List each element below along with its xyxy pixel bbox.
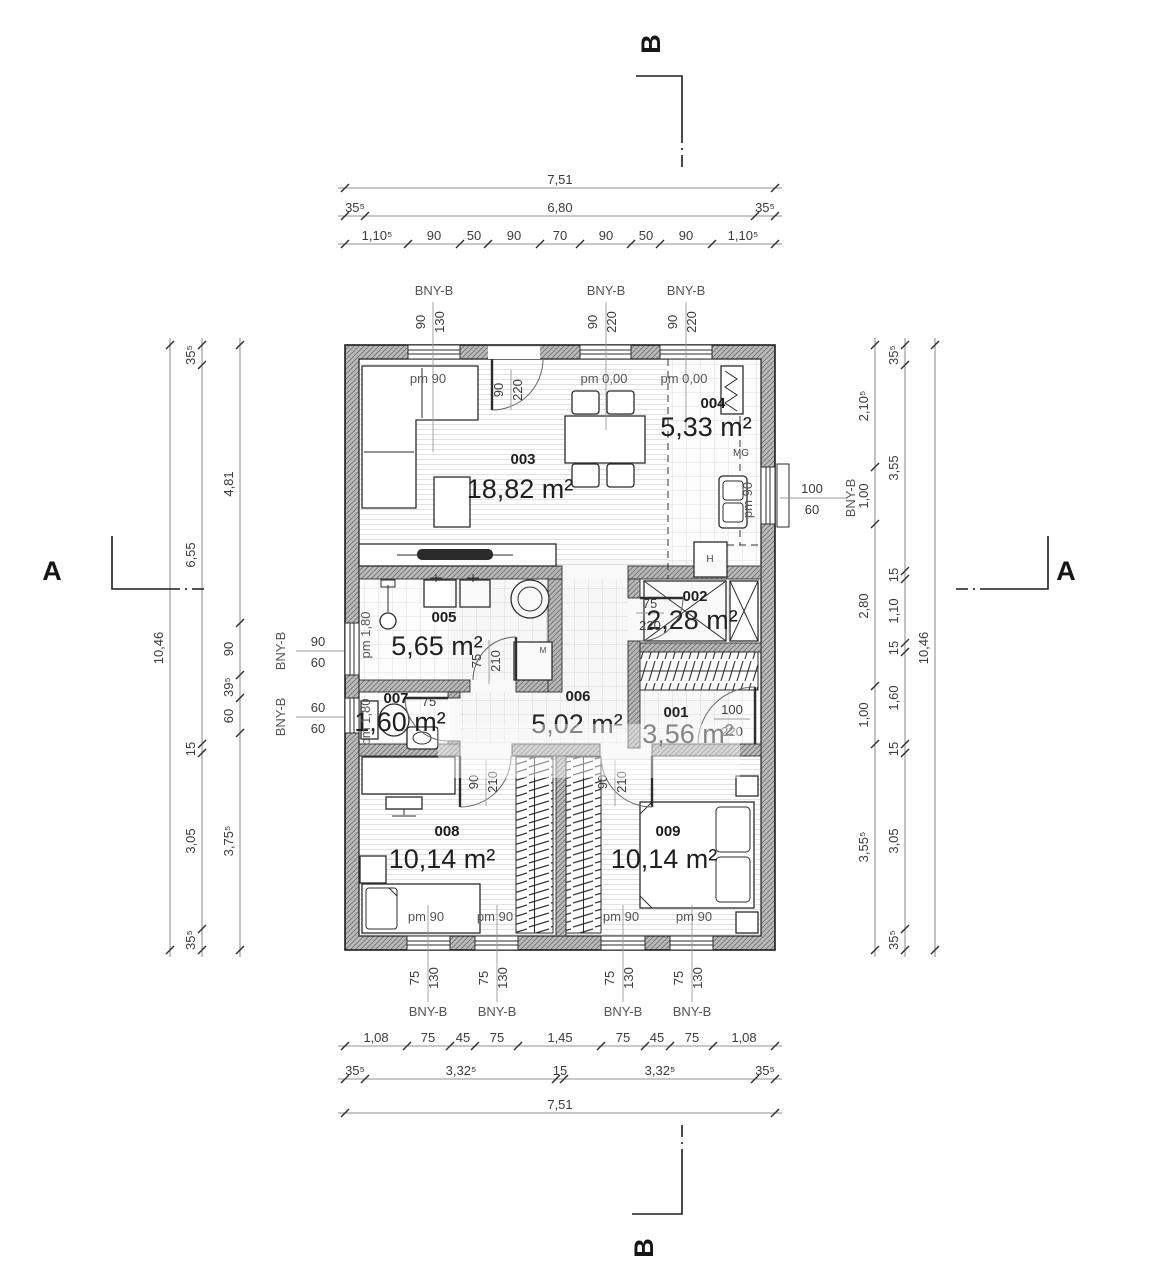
floor-plan-drawing: 003 18,82 m² 004 5,33 m² 005 5,65 m² 002…: [0, 0, 1171, 1287]
window-type-label: BNY-B: [273, 698, 288, 737]
window-type-label: BNY-B: [673, 1004, 712, 1019]
faucet: [380, 613, 396, 629]
pm-label: pm 1,80: [358, 612, 373, 659]
window-type-label: BNY-B: [587, 283, 626, 298]
window-size-label: 60: [805, 502, 819, 517]
window-size-label: 130: [432, 311, 447, 333]
window-size-label: 60: [311, 721, 325, 736]
door-size-label: 75: [422, 694, 436, 709]
dim-label: 75: [490, 1030, 504, 1045]
room-number: 003: [510, 451, 535, 468]
window-size-label: 220: [684, 311, 699, 333]
coffee-table: [434, 477, 470, 527]
dim-label: 35⁵: [345, 200, 365, 215]
dining-table: [565, 416, 645, 463]
nightstand: [736, 912, 758, 933]
dim-label: 90: [427, 228, 441, 243]
dim-label: 15: [183, 742, 198, 756]
fixture-label-mg: MG: [733, 448, 749, 459]
dim-label: 10,46: [916, 632, 931, 665]
window-size-label: 90: [413, 315, 428, 329]
dim-label: 2,10⁵: [856, 391, 871, 422]
door-size-label: 90: [491, 383, 506, 397]
dim-label: 50: [639, 228, 653, 243]
dim-label: 35⁵: [183, 345, 198, 365]
dim-label: 3,05: [886, 828, 901, 853]
dim-label: 35⁵: [183, 930, 198, 950]
window-type-label: BNY-B: [667, 283, 706, 298]
room-number: 009: [655, 823, 680, 840]
dim-label: 1,00: [856, 702, 871, 727]
section-letter-b: B: [629, 1238, 659, 1258]
dim-label: 1,00: [856, 483, 871, 508]
dim-label: 1,45: [547, 1030, 572, 1045]
room-number: 007: [383, 690, 408, 707]
chair: [607, 391, 634, 414]
dim-label: 3,55⁵: [856, 832, 871, 863]
dim-label: 90: [221, 642, 236, 656]
window-type-label: BNY-B: [415, 283, 454, 298]
dim-label: 1,60: [886, 685, 901, 710]
dim-label: 39⁵: [221, 677, 236, 697]
section-letter-b: B: [636, 34, 666, 54]
window-size-label: 75: [407, 971, 422, 985]
room-area: 10,14 m²: [611, 844, 718, 874]
dim-label: 3,55: [886, 455, 901, 480]
dim-label: 70: [553, 228, 567, 243]
dim-label: 90: [507, 228, 521, 243]
room-area: 18,82 m²: [467, 474, 574, 504]
pm-label: pm 90: [477, 909, 513, 924]
window-size-label: 130: [426, 967, 441, 989]
window-type-label: BNY-B: [409, 1004, 448, 1019]
window-size-label: 90: [585, 315, 600, 329]
dim-label: 6,80: [547, 200, 572, 215]
dim-label: 2,80: [856, 593, 871, 618]
pm-label: pm 1,80: [358, 699, 373, 746]
window-size-label: 100: [801, 481, 823, 496]
dim-label: 35⁵: [886, 930, 901, 950]
window-size-label: 60: [311, 655, 325, 670]
pm-label: pm 90: [603, 909, 639, 924]
nightstand: [736, 776, 758, 796]
dim-label: 1,10: [886, 598, 901, 623]
dim-label: 60: [221, 709, 236, 723]
window-size-label: 130: [495, 967, 510, 989]
dim-label: 3,05: [183, 828, 198, 853]
dim-label: 7,51: [547, 172, 572, 187]
dim-label: 6,55: [183, 542, 198, 567]
dim-label: 75: [421, 1030, 435, 1045]
window-type-label: BNY-B: [604, 1004, 643, 1019]
dim-label: 75: [685, 1030, 699, 1045]
window-size-label: 75: [602, 971, 617, 985]
window-size-label: 75: [476, 971, 491, 985]
room-number: 008: [434, 823, 459, 840]
dim-label: 1,10⁵: [728, 228, 759, 243]
dim-label: 1,08: [363, 1030, 388, 1045]
dim-label: 15: [553, 1063, 567, 1078]
dim-label: 35⁵: [345, 1063, 365, 1078]
dim-label: 3,75⁵: [221, 826, 236, 857]
dim-label: 10,46: [151, 632, 166, 665]
dim-label: 45: [456, 1030, 470, 1045]
chair: [607, 464, 634, 487]
pm-label: pm 0,00: [661, 371, 708, 386]
window-size-label: 90: [665, 315, 680, 329]
dim-label: 7,51: [547, 1097, 572, 1112]
dim-label: 15: [886, 641, 901, 655]
floor-plan-page: 003 18,82 m² 004 5,33 m² 005 5,65 m² 002…: [0, 0, 1171, 1287]
window-size-label: 130: [690, 967, 705, 989]
dim-label: 15: [886, 568, 901, 582]
room-number: 004: [700, 395, 726, 412]
dim-label: 3,32⁵: [446, 1063, 477, 1078]
window-size-label: 75: [671, 971, 686, 985]
dim-label: 1,08: [731, 1030, 756, 1045]
tv: [417, 549, 493, 560]
room-area: 5,33 m²: [660, 412, 752, 442]
dim-label: 90: [599, 228, 613, 243]
pm-label: pm 0,00: [581, 371, 628, 386]
pm-label: pm 90: [410, 371, 446, 386]
nightstand: [360, 856, 386, 883]
dim-label: 50: [467, 228, 481, 243]
dim-label: 15: [886, 742, 901, 756]
window-type-label: BNY-B: [273, 632, 288, 671]
dim-label: 4,81: [221, 471, 236, 496]
dim-label: 35⁵: [755, 200, 775, 215]
window-size-label: 90: [311, 634, 325, 649]
room-area: 10,14 m²: [389, 844, 496, 874]
monitor: [386, 797, 422, 809]
door-size-label: 220: [510, 379, 525, 401]
section-letter-a: A: [1056, 556, 1076, 586]
dim-label: 90: [679, 228, 693, 243]
dim-label: 1,10⁵: [362, 228, 393, 243]
dim-label: 35⁵: [755, 1063, 775, 1078]
pm-label: pm 90: [408, 909, 444, 924]
window-type-label: BNY-B: [478, 1004, 517, 1019]
dim-label: 45: [650, 1030, 664, 1045]
window-size-label: 220: [604, 311, 619, 333]
dim-label: 75: [616, 1030, 630, 1045]
pm-label: pm 90: [676, 909, 712, 924]
dim-label: 3,32⁵: [645, 1063, 676, 1078]
window-size-label: 130: [621, 967, 636, 989]
window-size-label: 60: [311, 700, 325, 715]
pm-label: pm 90: [740, 482, 755, 518]
dim-label: 35⁵: [886, 345, 901, 365]
section-letter-a: A: [42, 556, 62, 586]
chair: [572, 391, 599, 414]
watermark: [438, 560, 740, 778]
chair: [572, 464, 599, 487]
